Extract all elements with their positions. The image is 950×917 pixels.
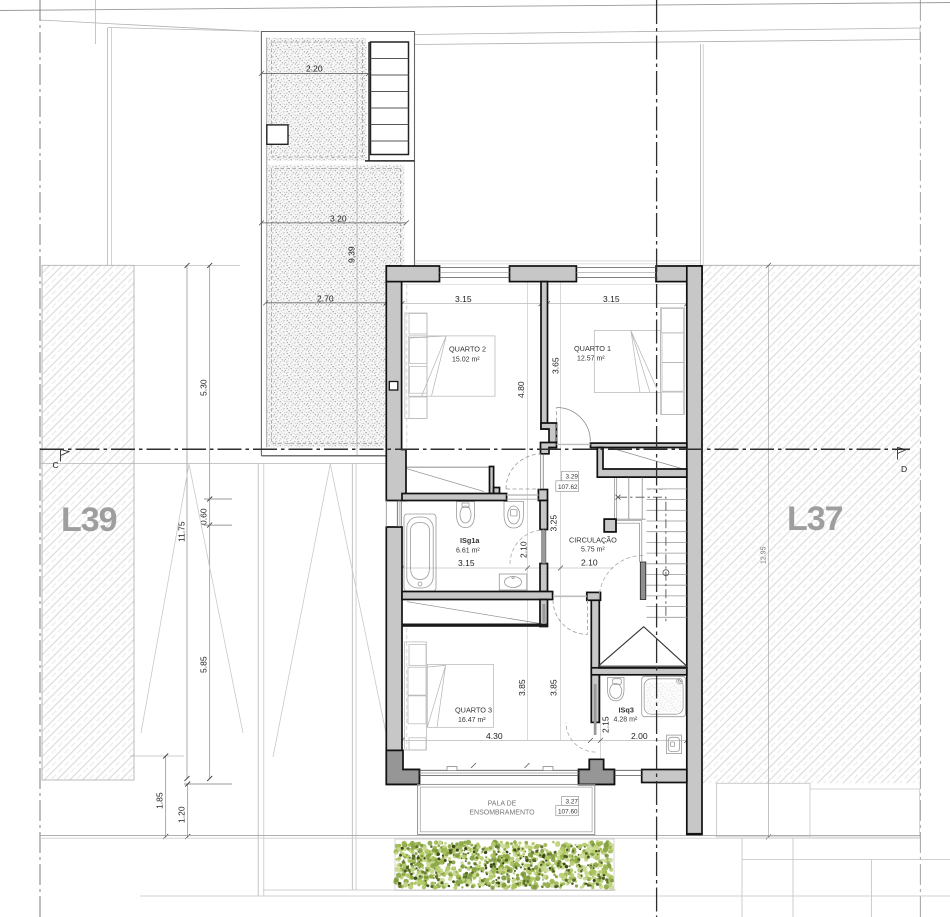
svg-text:4.28 m²: 4.28 m²: [614, 717, 638, 724]
svg-text:D: D: [901, 464, 907, 474]
svg-text:QUARTO 3: QUARTO 3: [455, 706, 492, 715]
svg-text:6.61 m²: 6.61 m²: [456, 548, 480, 555]
svg-text:3.15: 3.15: [458, 558, 475, 568]
svg-text:9.39: 9.39: [347, 246, 357, 263]
svg-text:QUARTO 2: QUARTO 2: [449, 345, 486, 354]
svg-text:0.60: 0.60: [199, 508, 209, 525]
svg-text:ISg1a: ISg1a: [460, 536, 480, 545]
svg-text:107.60: 107.60: [558, 809, 578, 816]
svg-text:16.47 m²: 16.47 m²: [458, 717, 486, 724]
svg-text:3.20: 3.20: [330, 213, 347, 223]
svg-text:2.20: 2.20: [306, 64, 323, 74]
svg-text:3.15: 3.15: [455, 294, 472, 304]
svg-text:4.80: 4.80: [516, 381, 526, 398]
svg-text:3.27: 3.27: [566, 799, 579, 806]
svg-text:3.85: 3.85: [549, 679, 559, 696]
svg-text:5.85: 5.85: [199, 656, 209, 673]
svg-text:PALA DE: PALA DE: [488, 801, 517, 808]
svg-text:3.15: 3.15: [603, 294, 620, 304]
svg-text:L37: L37: [787, 500, 843, 538]
svg-text:5.75 m²: 5.75 m²: [581, 547, 605, 554]
svg-text:2.15: 2.15: [601, 716, 611, 733]
svg-text:3.85: 3.85: [517, 679, 527, 696]
svg-text:4.30: 4.30: [486, 731, 503, 741]
svg-text:5.30: 5.30: [199, 379, 209, 396]
svg-text:2.00: 2.00: [631, 731, 648, 741]
svg-text:1.85: 1.85: [155, 792, 165, 809]
svg-text:107.62: 107.62: [558, 484, 578, 491]
svg-text:QUARTO 1: QUARTO 1: [574, 344, 611, 353]
svg-text:3.29: 3.29: [566, 474, 579, 481]
svg-text:C: C: [53, 460, 59, 470]
svg-text:15.02 m²: 15.02 m²: [452, 357, 480, 364]
svg-text:1.20: 1.20: [177, 806, 187, 823]
svg-text:2.70: 2.70: [317, 293, 334, 303]
svg-text:12.57 m²: 12.57 m²: [577, 356, 605, 363]
svg-text:ENSOMBRAMENTO: ENSOMBRAMENTO: [469, 810, 535, 817]
svg-text:L39: L39: [61, 501, 117, 539]
svg-text:3.25: 3.25: [549, 515, 559, 532]
svg-text:2.10: 2.10: [581, 558, 598, 568]
svg-text:12.95: 12.95: [761, 546, 768, 564]
svg-text:CIRCULAÇÃO: CIRCULAÇÃO: [569, 536, 617, 545]
svg-text:ISq3: ISq3: [619, 706, 634, 715]
svg-text:2.10: 2.10: [519, 541, 529, 558]
svg-text:3.65: 3.65: [551, 357, 561, 374]
